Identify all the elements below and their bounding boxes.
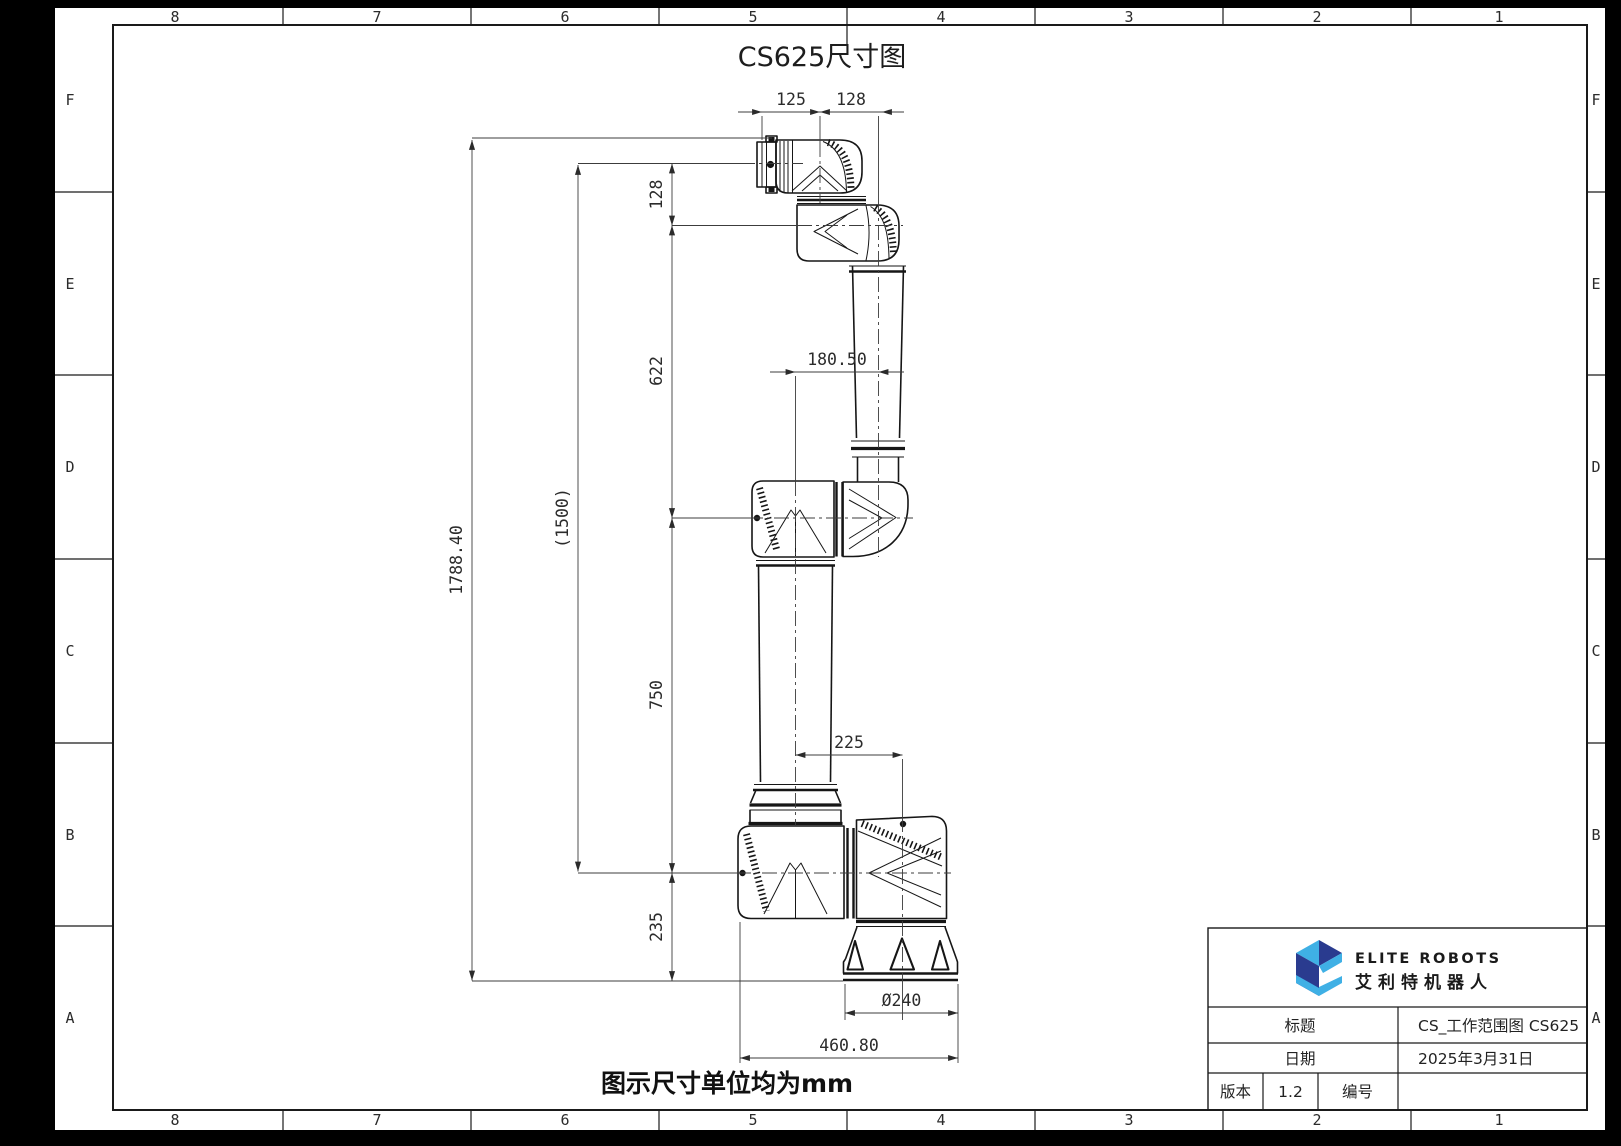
zone-row-right: E <box>1591 275 1600 293</box>
zone-col-top: 4 <box>936 8 945 26</box>
dim-235: 235 <box>647 912 666 942</box>
dim-128-top: 128 <box>836 90 866 109</box>
zone-row-right: C <box>1591 642 1600 660</box>
units-note: 图示尺寸单位均为mm <box>601 1069 853 1098</box>
zone-col-top: 7 <box>372 8 381 26</box>
version-label: 版本 <box>1220 1083 1251 1101</box>
drawing-title: CS625尺寸图 <box>738 42 907 73</box>
zone-row-right: A <box>1591 1009 1600 1027</box>
dim-750: 750 <box>647 680 666 710</box>
cad-drawing-svg: 8 7 6 5 4 3 2 1 8 7 6 5 4 3 2 1 F E D C … <box>0 0 1621 1146</box>
zone-row-left: C <box>65 642 74 660</box>
zone-row-left: D <box>65 458 74 476</box>
dim-1500: (1500) <box>553 488 572 548</box>
zone-col-bottom: 2 <box>1312 1111 1321 1129</box>
zone-col-top: 3 <box>1124 8 1133 26</box>
zone-col-bottom: 6 <box>560 1111 569 1129</box>
drawing-sheet-stage: 8 7 6 5 4 3 2 1 8 7 6 5 4 3 2 1 F E D C … <box>0 0 1621 1146</box>
zone-row-right: B <box>1591 826 1600 844</box>
brand-name-en: ELITE ROBOTS <box>1355 951 1502 967</box>
dim-460-80: 460.80 <box>819 1036 879 1055</box>
dim-diameter-240: Ø240 <box>882 991 922 1010</box>
date-value: 2025年3月31日 <box>1418 1050 1534 1068</box>
zone-col-top: 8 <box>170 8 179 26</box>
dim-128-side: 128 <box>647 180 666 210</box>
zone-row-right: D <box>1591 458 1600 476</box>
title-value: CS_工作范围图 CS625 <box>1418 1017 1579 1036</box>
version-value: 1.2 <box>1278 1083 1303 1101</box>
zone-col-bottom: 5 <box>748 1111 757 1129</box>
brand-name-cn: 艾利特机器人 <box>1355 972 1493 993</box>
dim-180-50: 180.50 <box>807 350 867 369</box>
zone-col-bottom: 4 <box>936 1111 945 1129</box>
zone-col-bottom: 8 <box>170 1111 179 1129</box>
zone-row-left: E <box>65 275 74 293</box>
zone-col-top: 5 <box>748 8 757 26</box>
zone-col-top: 1 <box>1494 8 1503 26</box>
zone-col-bottom: 1 <box>1494 1111 1503 1129</box>
number-label: 编号 <box>1342 1083 1373 1101</box>
zone-row-left: A <box>65 1009 74 1027</box>
title-label: 标题 <box>1284 1017 1315 1035</box>
date-label: 日期 <box>1284 1050 1315 1068</box>
dim-622: 622 <box>647 356 666 386</box>
zone-col-top: 2 <box>1312 8 1321 26</box>
zone-col-bottom: 3 <box>1124 1111 1133 1129</box>
zone-row-right: F <box>1591 91 1600 109</box>
dim-1788-40: 1788.40 <box>447 525 466 595</box>
zone-col-bottom: 7 <box>372 1111 381 1129</box>
dim-225: 225 <box>834 733 864 752</box>
zone-row-left: B <box>65 826 74 844</box>
zone-col-top: 6 <box>560 8 569 26</box>
dim-125: 125 <box>776 90 806 109</box>
zone-row-left: F <box>65 91 74 109</box>
